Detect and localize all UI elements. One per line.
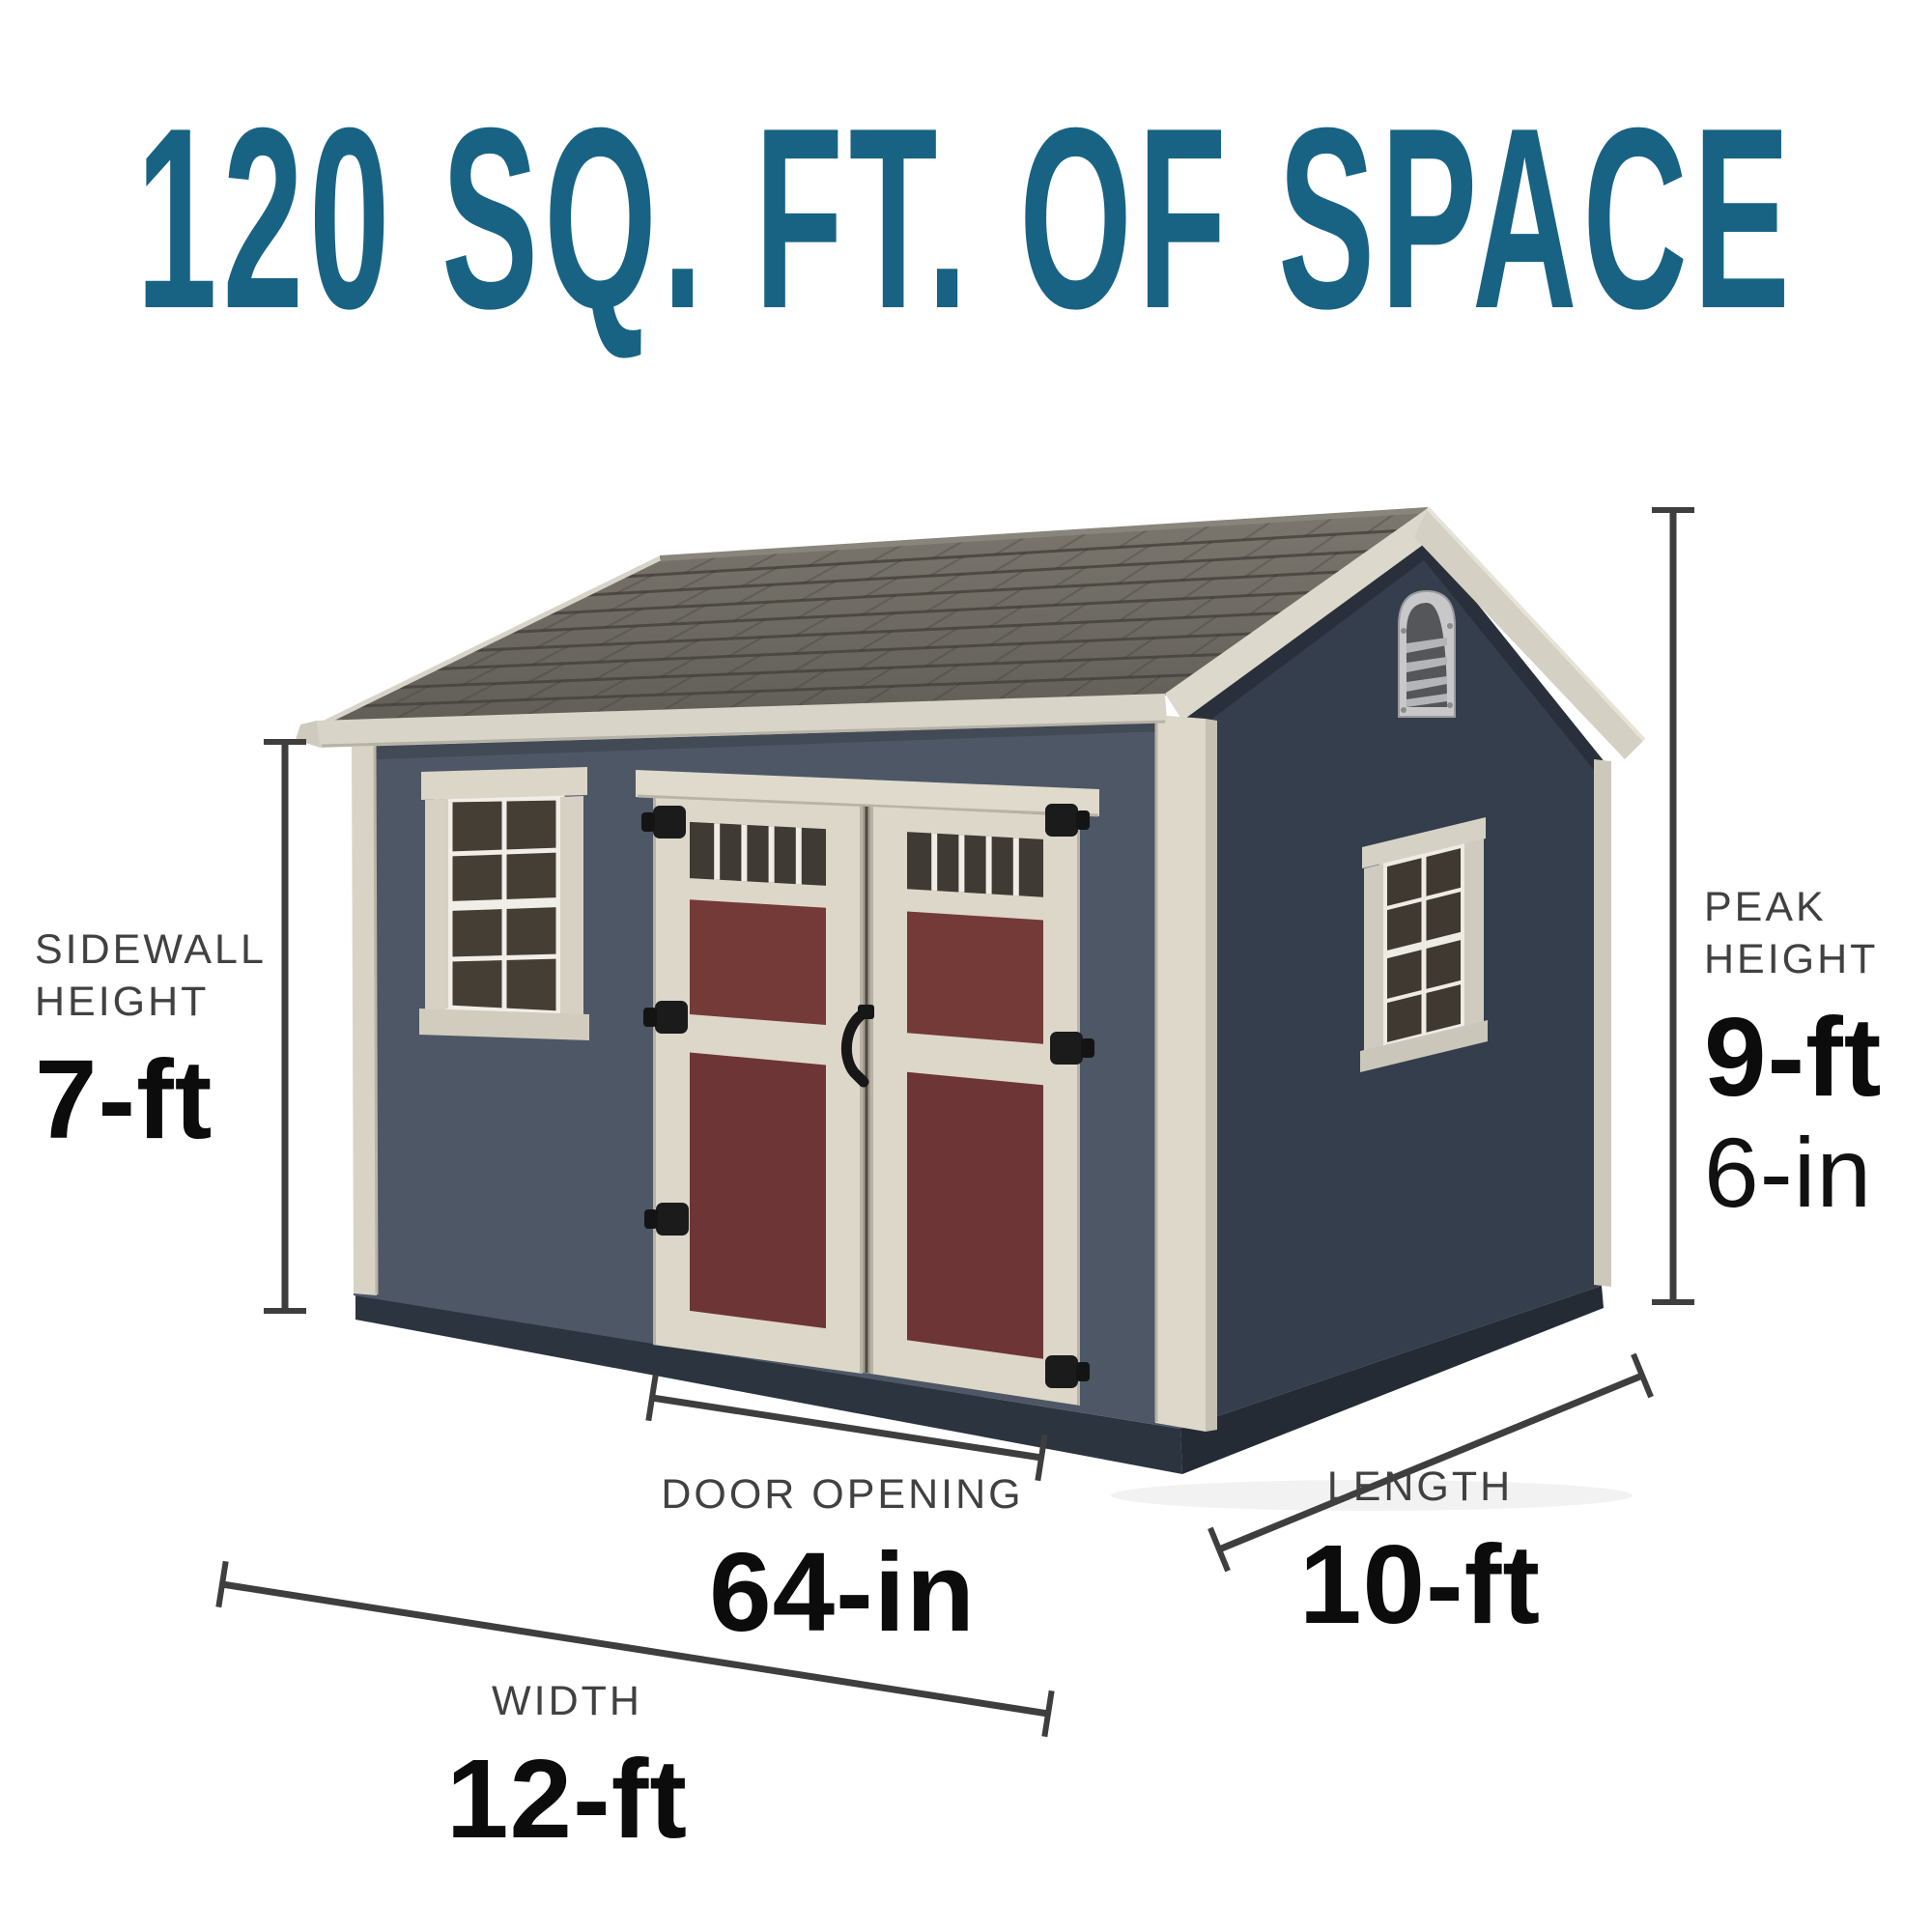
peak-height-value-secondary: 6-in bbox=[1704, 1119, 1926, 1227]
door-opening-callout: DOOR OPENING 64-in bbox=[601, 1468, 1084, 1652]
peak-height-label: PEAK HEIGHT bbox=[1704, 881, 1926, 985]
peak-height-callout: PEAK HEIGHT 9-ft 6-in bbox=[1704, 881, 1926, 1227]
width-callout: WIDTH 12-ft bbox=[340, 1675, 794, 1859]
side-window bbox=[1360, 817, 1488, 1072]
door-right bbox=[870, 807, 1080, 1406]
sidewall-height-value: 7-ft bbox=[35, 1039, 315, 1159]
double-doors bbox=[641, 798, 1094, 1406]
length-label: LENGTH bbox=[1188, 1461, 1652, 1513]
width-label: WIDTH bbox=[340, 1675, 794, 1727]
door-opening-label: DOOR OPENING bbox=[601, 1468, 1084, 1520]
length-value: 10-ft bbox=[1188, 1524, 1652, 1644]
gable-vent bbox=[1399, 591, 1455, 717]
peak-height-dimension-line bbox=[1652, 510, 1694, 1302]
shed-infographic: 120 SQ. FT. OF SPACE bbox=[0, 0, 1932, 1932]
front-window bbox=[419, 767, 589, 1040]
corner-trim-near bbox=[1155, 715, 1206, 1432]
peak-height-value: 9-ft bbox=[1704, 997, 1926, 1117]
sidewall-height-callout: SIDEWALL HEIGHT 7-ft bbox=[35, 923, 315, 1159]
corner-trim-left-shade bbox=[375, 742, 377, 1294]
edge-trim-right bbox=[1594, 759, 1611, 1287]
length-callout: LENGTH 10-ft bbox=[1188, 1461, 1652, 1644]
door-opening-value: 64-in bbox=[601, 1532, 1084, 1652]
door-left bbox=[653, 798, 863, 1374]
corner-trim-left bbox=[352, 741, 377, 1295]
sidewall-height-label: SIDEWALL HEIGHT bbox=[35, 923, 315, 1028]
width-value: 12-ft bbox=[340, 1739, 794, 1859]
corner-trim-near-return bbox=[1206, 719, 1217, 1432]
